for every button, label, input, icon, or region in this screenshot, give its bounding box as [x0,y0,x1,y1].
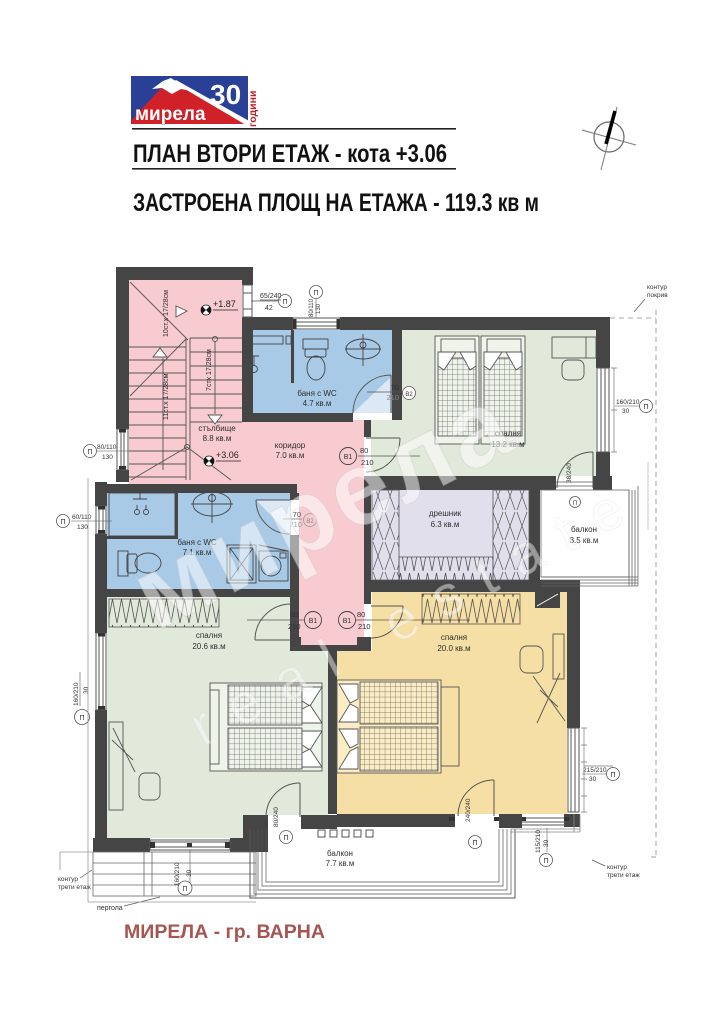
svg-text:П: П [472,840,477,847]
svg-text:П: П [182,886,187,893]
svg-text:80/110: 80/110 [97,444,117,451]
svg-text:210: 210 [288,622,301,631]
svg-text:баня с WC: баня с WC [297,389,337,398]
svg-text:П: П [283,835,288,842]
svg-text:спалня: спалня [441,633,467,642]
svg-text:60/110: 60/110 [72,514,92,521]
svg-text:контур: контур [647,284,667,291]
svg-text:B1: B1 [309,618,318,625]
svg-text:65/240: 65/240 [260,293,282,300]
svg-text:80: 80 [290,610,298,619]
svg-text:30: 30 [589,776,597,783]
svg-text:ПЛАН ВТОРИ ЕТАЖ - кота +3.06: ПЛАН ВТОРИ ЕТАЖ - кота +3.06 [133,140,447,168]
svg-text:П: П [282,299,287,306]
svg-text:30: 30 [543,839,550,847]
svg-text:30: 30 [186,869,193,877]
svg-text:80/240: 80/240 [273,807,280,827]
svg-text:160/210: 160/210 [174,862,181,886]
svg-text:контур: контур [58,876,78,883]
svg-text:30: 30 [210,79,241,110]
svg-text:балкон: балкон [327,849,353,858]
svg-text:П: П [643,404,648,411]
svg-text:мирела: мирела [135,104,206,125]
svg-text:6.3 кв.м: 6.3 кв.м [431,520,460,529]
svg-text:80/110: 80/110 [309,298,315,317]
svg-text:трети етаж: трети етаж [58,884,91,891]
svg-text:215/210: 215/210 [583,767,607,774]
svg-text:МИРЕЛА - гр. ВАРНА: МИРЕЛА - гр. ВАРНА [124,922,325,943]
svg-text:70: 70 [391,383,399,392]
svg-text:години: години [247,91,259,127]
svg-text:115/210: 115/210 [535,830,542,853]
svg-text:130: 130 [102,454,113,461]
svg-text:ЗАСТРОЕНА ПЛОЩ НА ЕТАЖА - 119.: ЗАСТРОЕНА ПЛОЩ НА ЕТАЖА - 119.3 кв м [133,189,539,217]
svg-text:30: 30 [83,686,90,694]
svg-text:пергола: пергола [97,905,123,912]
svg-text:20.0 кв.м: 20.0 кв.м [437,644,470,653]
svg-text:трети етаж: трети етаж [607,872,640,879]
svg-text:П: П [543,858,548,865]
svg-text:покрив: покрив [647,292,668,299]
svg-text:8.8 кв.м: 8.8 кв.м [203,434,232,443]
svg-text:4.7 кв.м: 4.7 кв.м [303,399,332,408]
svg-text:160/210: 160/210 [73,682,80,706]
svg-text:130: 130 [316,303,322,314]
svg-text:11ст.х 17/28см: 11ст.х 17/28см [163,373,170,420]
svg-text:7стх 17/28см: 7стх 17/28см [206,349,213,391]
svg-text:стълбище: стълбище [198,424,236,433]
svg-text:контур: контур [607,864,627,871]
svg-text:+1.87: +1.87 [213,299,236,309]
svg-text:38/240: 38/240 [566,463,573,483]
svg-text:+3.06: +3.06 [216,450,239,460]
svg-text:П: П [610,772,615,779]
svg-text:30: 30 [622,408,630,415]
svg-text:130: 130 [77,524,88,531]
svg-text:10ст.х 17/28см: 10ст.х 17/28см [163,290,170,337]
svg-text:П: П [313,290,318,297]
svg-text:П: П [87,449,92,456]
svg-text:210: 210 [386,393,399,402]
svg-text:20.6 кв.м: 20.6 кв.м [192,642,225,651]
svg-text:П: П [79,715,84,722]
svg-text:42: 42 [265,305,273,312]
svg-text:7.7 кв.м: 7.7 кв.м [326,859,355,868]
svg-text:коридор: коридор [275,441,306,450]
svg-text:160/210: 160/210 [616,399,640,406]
svg-text:240/240: 240/240 [465,798,472,822]
svg-text:П: П [60,519,65,526]
